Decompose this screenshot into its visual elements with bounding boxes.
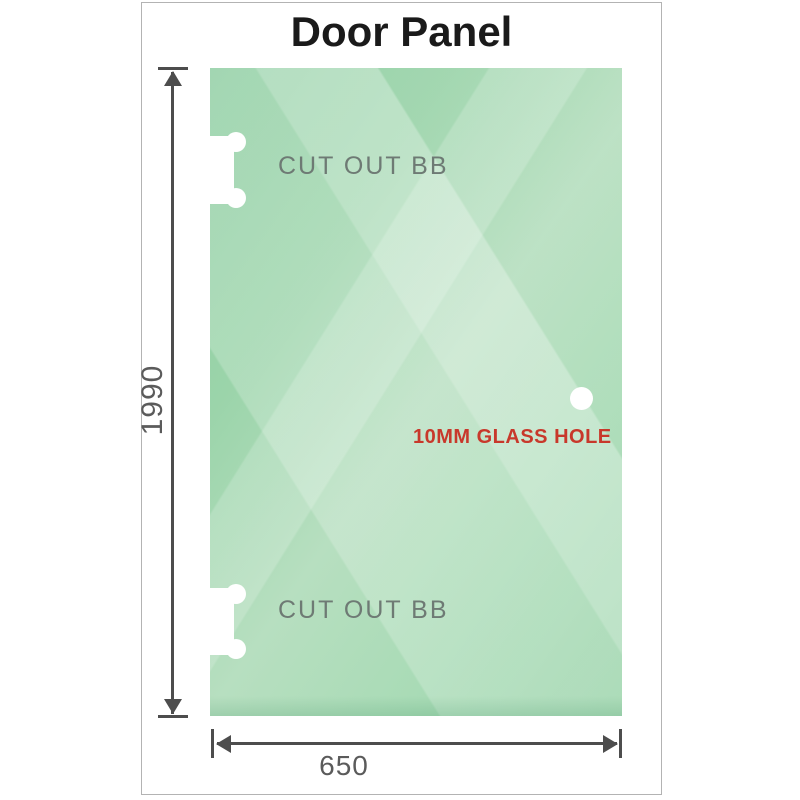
cutout-lobe-icon: [226, 584, 246, 604]
height-dimension-tick-bottom: [158, 715, 188, 718]
cutout-label-top: CUT OUT BB: [278, 151, 449, 181]
glass-hole: [570, 387, 593, 410]
height-dimension-tick-top: [158, 67, 188, 70]
cutout-lobe-icon: [226, 188, 246, 208]
arrow-down-icon: [164, 699, 182, 714]
arrow-up-icon: [164, 71, 182, 86]
hinge-cutout-top: [208, 136, 234, 204]
width-dimension-line: [217, 742, 617, 745]
height-dimension-line: [171, 72, 174, 714]
arrow-right-icon: [603, 735, 618, 753]
width-dimension-tick-left: [211, 729, 214, 758]
cutout-lobe-icon: [226, 132, 246, 152]
glass-hole-label: 10MM GLASS HOLE: [413, 426, 612, 449]
hinge-cutout-bottom: [208, 588, 234, 655]
cutout-lobe-icon: [226, 639, 246, 659]
diagram-title: Door Panel: [141, 8, 662, 56]
width-dimension-value: 650: [294, 750, 394, 782]
arrow-left-icon: [216, 735, 231, 753]
width-dimension-tick-right: [619, 729, 622, 758]
height-dimension-value: 1990: [138, 350, 168, 450]
cutout-label-bottom: CUT OUT BB: [278, 595, 449, 625]
